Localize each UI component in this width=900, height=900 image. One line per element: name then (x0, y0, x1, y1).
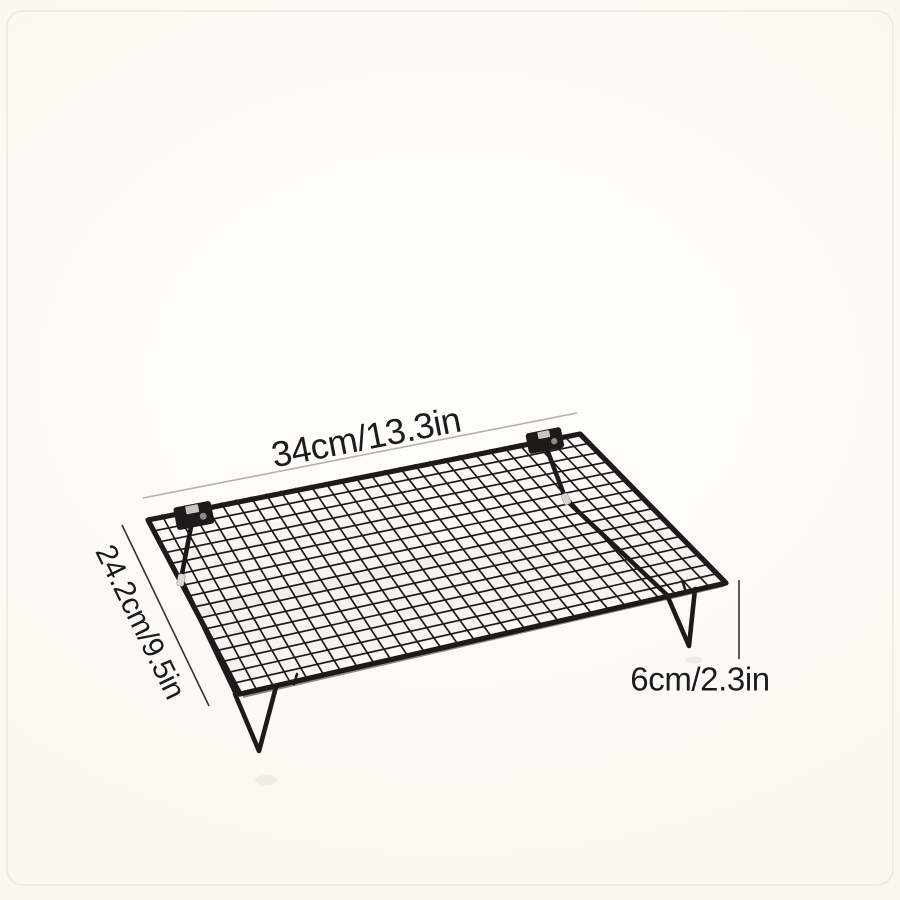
product-photo-canvas: 34cm/13.3in 24.2cm/9.5in 6cm/2.3in (0, 0, 900, 900)
height-dimension-label: 6cm/2.3in (630, 661, 769, 698)
product-photo: 34cm/13.3in 24.2cm/9.5in 6cm/2.3in (0, 0, 900, 900)
photo-edge (7, 11, 893, 885)
